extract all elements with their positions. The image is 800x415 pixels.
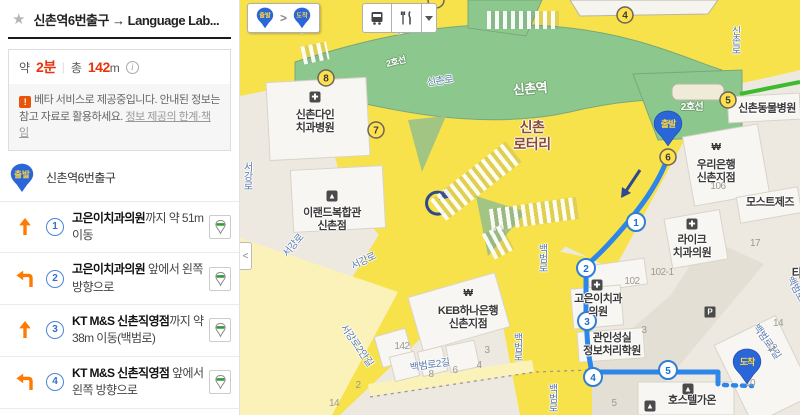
summary-total: 총 [71,59,82,76]
caret-down-icon [425,16,433,21]
summary-distance: 142m [88,59,120,75]
step-text: 고은이치과의원까지 약 51m 이동 [72,210,205,245]
house-number: 8 [428,369,433,381]
roadview-button[interactable] [209,370,231,394]
poi-label: 고은이치과의원 [574,293,622,319]
start-pin-mini-icon: 출발 [256,7,274,29]
route-start-item[interactable]: 출발 신촌역6번출구 [0,155,239,201]
house-number: 3 [641,325,646,337]
parking-icon: P [705,307,716,318]
house-number: 6 [452,365,457,377]
route-sidebar: ★ 신촌역6번출구 → Language Lab... 약 2분 | 총 142… [0,0,240,415]
map-poi-toolbar [362,3,437,33]
house-number: 3 [484,345,489,357]
road-label: 신촌로 [728,26,740,55]
food-filter-button[interactable] [392,3,422,33]
route-step-1[interactable]: 1 고은이치과의원까지 약 51m 이동 [0,201,239,253]
bus-icon [369,10,385,26]
turn-left-arrow-icon [12,269,38,289]
svg-text:1: 1 [633,218,639,229]
house-number: 102-1 [650,267,673,279]
summary-about: 약 [19,59,30,76]
map-start-pin[interactable]: 출발 [653,110,683,152]
svg-text:5: 5 [665,366,671,377]
poi-label: 호스텔가온 [668,394,716,407]
straight-arrow-icon [12,320,38,340]
summary-separator: | [62,60,65,74]
header-divider [8,37,231,39]
route-summary: 약 2분 | 총 142m i [9,50,230,84]
end-pin-mini-icon: 도착 [293,7,311,29]
crosswalk [487,11,559,29]
step-number: 1 [46,218,64,236]
route-steps-list: 출발 신촌역6번출구 1 고은이치과의원까지 약 51m 이동 [0,155,239,415]
filter-dropdown-button[interactable] [422,3,437,33]
poi-label: KEB하나은행신촌지점 [438,305,498,331]
road-label: 백범로 [545,384,557,413]
start-label: 신촌역6번출구 [46,169,231,186]
bus-filter-button[interactable] [362,3,392,33]
rotary-label: 신촌로터리 [513,119,550,153]
step-number: 3 [46,321,64,339]
building-icon: ▲ [645,401,656,412]
house-number: 14 [773,318,783,330]
straight-arrow-icon [12,217,38,237]
beta-notice: !베타 서비스로 제공중입니다. 안내된 정보는 참고 자료로 활용하세요. 정… [9,84,230,150]
road-label: 백범로 [535,244,547,273]
hospital-icon: ✚ [687,219,698,230]
route-title: 신촌역6번출구 → Language Lab... [33,10,219,29]
step-number: 2 [46,270,64,288]
poi-label: 모스트제즈 [746,196,794,209]
poi-label: 신촌동물병원 [738,102,796,115]
svg-text:4: 4 [590,373,596,384]
station-label: 신촌역 [512,80,547,98]
hospital-icon: ✚ [310,92,321,103]
summary-minutes: 2분 [36,57,56,77]
sidebar-collapse-button[interactable]: < [240,242,252,270]
start-pin-icon: 출발 [10,163,34,193]
poi-label: 신촌다인치과병원 [296,109,334,135]
poi-label: 이랜드복합관신촌점 [303,207,361,233]
svg-text:7: 7 [373,126,379,137]
route-step-5[interactable]: 5 Language Lab Study Cafe까지 약 53m 이동(백범로… [0,408,239,415]
step-text: KT M&S 신촌직영점 앞에서 왼쪽 방향으로 [72,365,205,400]
route-endpoints-control[interactable]: 출발 > 도착 [247,3,320,33]
building-icon: ▲ [327,191,338,202]
route-step-2[interactable]: 2 고은이치과의원 앞에서 왼쪽 방향으로 [0,252,239,304]
step-number: 4 [46,373,64,391]
step-text: KT M&S 신촌직영점까지 약 38m 이동(백범로) [72,313,205,348]
svg-text:4: 4 [622,11,628,22]
step-text: 고은이치과의원 앞에서 왼쪽 방향으로 [72,261,205,296]
svg-text:출발: 출발 [259,12,271,20]
route-step-4[interactable]: 4 KT M&S 신촌직영점 앞에서 왼쪽 방향으로 [0,356,239,408]
route-step-3[interactable]: 3 KT M&S 신촌직영점까지 약 38m 이동(백범로) [0,304,239,356]
route-info-box: 약 2분 | 총 142m i !베타 서비스로 제공중입니다. 안내된 정보는… [8,49,231,151]
house-number: 102 [624,276,639,288]
road-label: 서강로 [240,162,252,191]
chevron-right-icon: > [280,11,287,25]
line2-label: 2호선 [681,102,703,114]
route-finder-app: ★ 신촌역6번출구 → Language Lab... 약 2분 | 총 142… [0,0,800,415]
fork-knife-icon [399,10,415,26]
building-icon: ▲ [683,384,694,395]
bank-icon: ₩ [712,142,721,154]
map-end-pin[interactable]: 도착 [732,348,762,390]
poi-label: 라이크치과의원 [673,234,711,260]
svg-text:8: 8 [323,74,329,85]
svg-text:도착: 도착 [296,12,308,20]
house-number: 17 [750,238,760,250]
hospital-icon: ✚ [592,280,603,291]
house-number: 4 [476,360,481,372]
house-number: 106 [710,181,725,193]
svg-text:2: 2 [583,264,589,275]
house-number: 12 [767,343,777,355]
poi-label: 타 [792,266,800,280]
favorite-star-icon[interactable]: ★ [12,12,25,27]
route-header: ★ 신촌역6번출구 → Language Lab... [0,0,239,35]
house-number: 142 [394,341,409,353]
map-canvas[interactable]: 1 2 3 4 5 4 5 6 7 8 신촌로터리 신촌역 [240,0,800,415]
bank-icon: ₩ [464,288,473,300]
road-label: 백범로 [510,333,522,362]
svg-text:5: 5 [725,96,731,107]
roadview-button[interactable] [209,318,231,342]
roadview-icon [214,219,227,235]
svg-text:출발: 출발 [14,169,30,179]
poi-label: 관인성실정보처리학원 [583,332,641,358]
svg-text:6: 6 [665,153,671,164]
roadview-button[interactable] [209,215,231,239]
turn-left-arrow-icon [12,372,38,392]
house-number: 5 [611,398,616,410]
house-number: 14 [329,398,339,410]
house-number: 2 [355,380,360,392]
warning-icon: ! [19,96,31,108]
info-icon[interactable]: i [126,61,139,74]
roadview-button[interactable] [209,267,231,291]
